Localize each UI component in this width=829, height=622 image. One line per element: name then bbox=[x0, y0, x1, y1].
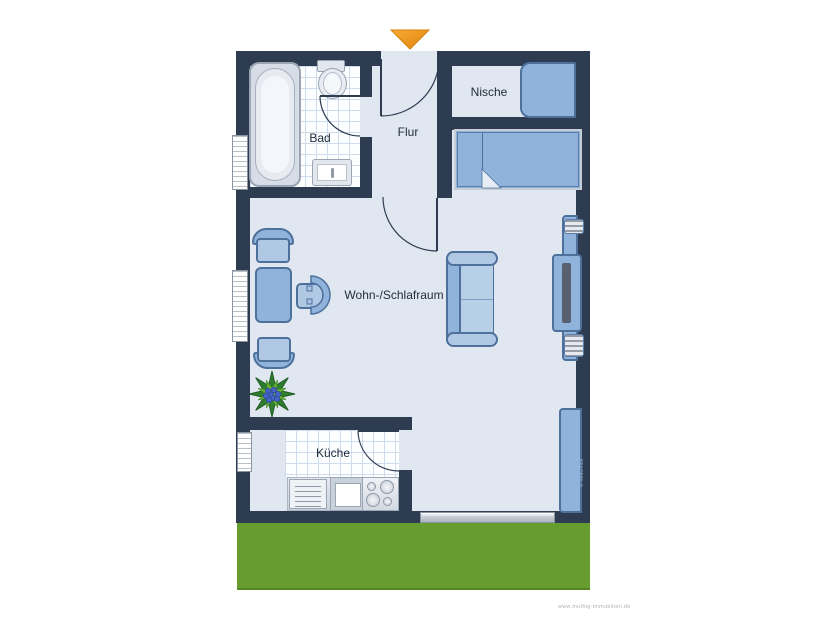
armchair-seat bbox=[296, 283, 324, 309]
bed-icon bbox=[454, 129, 582, 190]
kitchen-unit-icon bbox=[289, 479, 327, 509]
terrace-window-icon bbox=[420, 512, 555, 523]
stove-burner-small-2 bbox=[383, 497, 392, 506]
livingroom-window-icon bbox=[232, 270, 248, 342]
website-watermark: www.muthig-immobilien.de bbox=[558, 604, 631, 610]
wall-bad-right-upper bbox=[360, 66, 372, 97]
sofa-seat bbox=[458, 262, 494, 336]
tv-screen-icon bbox=[562, 263, 571, 323]
stove-burner-large-1 bbox=[380, 480, 394, 494]
room-label-kueche: Küche bbox=[316, 446, 350, 460]
toilet-bowl bbox=[323, 72, 342, 95]
room-label-wohn-schlafraum: Wohn-/Schlafraum bbox=[344, 288, 443, 302]
speaker-top-icon bbox=[564, 219, 584, 234]
washbasin-icon bbox=[312, 159, 352, 186]
bed-mattress bbox=[457, 132, 579, 187]
stove-burner-large-2 bbox=[366, 493, 380, 507]
copyright-watermark: © hedOffice bbox=[579, 427, 585, 487]
kitchen-sink-basin bbox=[335, 483, 361, 507]
sofa-armrest-top bbox=[446, 251, 498, 266]
stove-burner-small-1 bbox=[367, 482, 376, 491]
kitchen-sink-icon bbox=[330, 477, 364, 511]
room-label-bad: Bad bbox=[309, 131, 330, 145]
entrance-opening bbox=[381, 51, 437, 67]
chair-top-seat bbox=[256, 238, 290, 263]
bathtub-icon bbox=[249, 62, 301, 187]
garden-lawn bbox=[237, 523, 590, 590]
wall-bad-bottom bbox=[236, 187, 372, 198]
dining-table-icon bbox=[255, 267, 292, 323]
chair-bottom-seat bbox=[257, 337, 291, 362]
sofa-armrest-bottom bbox=[446, 332, 498, 347]
kitchen-window-icon bbox=[237, 432, 252, 472]
entrance-arrow-icon bbox=[391, 30, 429, 49]
wall-kitchen-top bbox=[236, 417, 412, 430]
room-label-nische: Nische bbox=[471, 85, 508, 99]
wall-flur-right bbox=[437, 51, 452, 198]
toilet-icon bbox=[318, 68, 347, 99]
room-label-flur: Flur bbox=[398, 125, 419, 139]
wall-kitchen-right bbox=[399, 470, 412, 511]
wardrobe-icon bbox=[520, 62, 576, 118]
speaker-bottom-icon bbox=[564, 334, 584, 357]
floorplan-canvas: Bad Flur Nische Wohn-/Schlafraum Küche ©… bbox=[0, 0, 829, 622]
washbasin-faucet bbox=[331, 168, 334, 178]
bathroom-window-icon bbox=[232, 135, 248, 190]
bed-pillow-divider bbox=[482, 132, 483, 187]
bathtub-basin bbox=[261, 76, 289, 173]
sofa-cushion-divider bbox=[459, 299, 493, 300]
